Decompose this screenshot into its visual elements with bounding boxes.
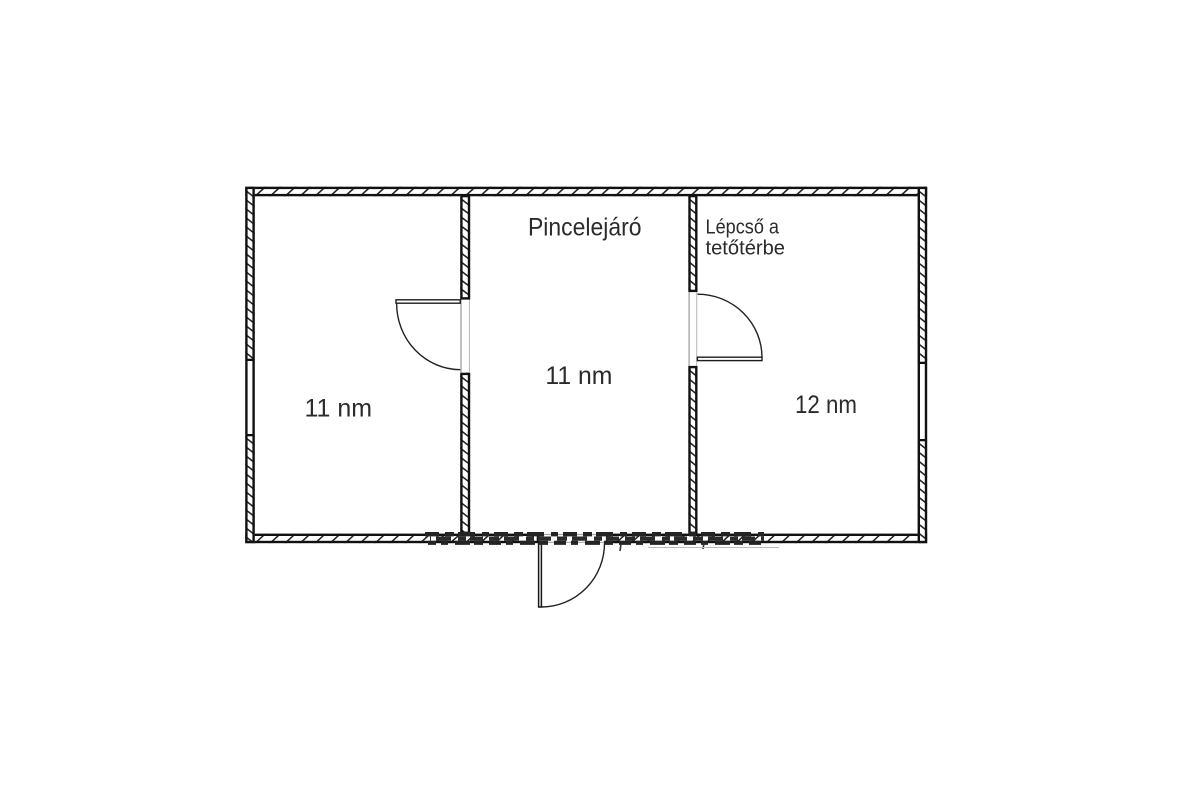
svg-text:11 nm: 11 nm [305,395,373,423]
svg-text:12 nm: 12 nm [795,391,857,419]
svg-text:Pincelejáró: Pincelejáró [528,214,642,242]
svg-text:Lépcső a: Lépcső a [706,216,780,239]
svg-text:tetőtérbe: tetőtérbe [706,237,786,260]
svg-text:11 nm: 11 nm [545,362,612,390]
